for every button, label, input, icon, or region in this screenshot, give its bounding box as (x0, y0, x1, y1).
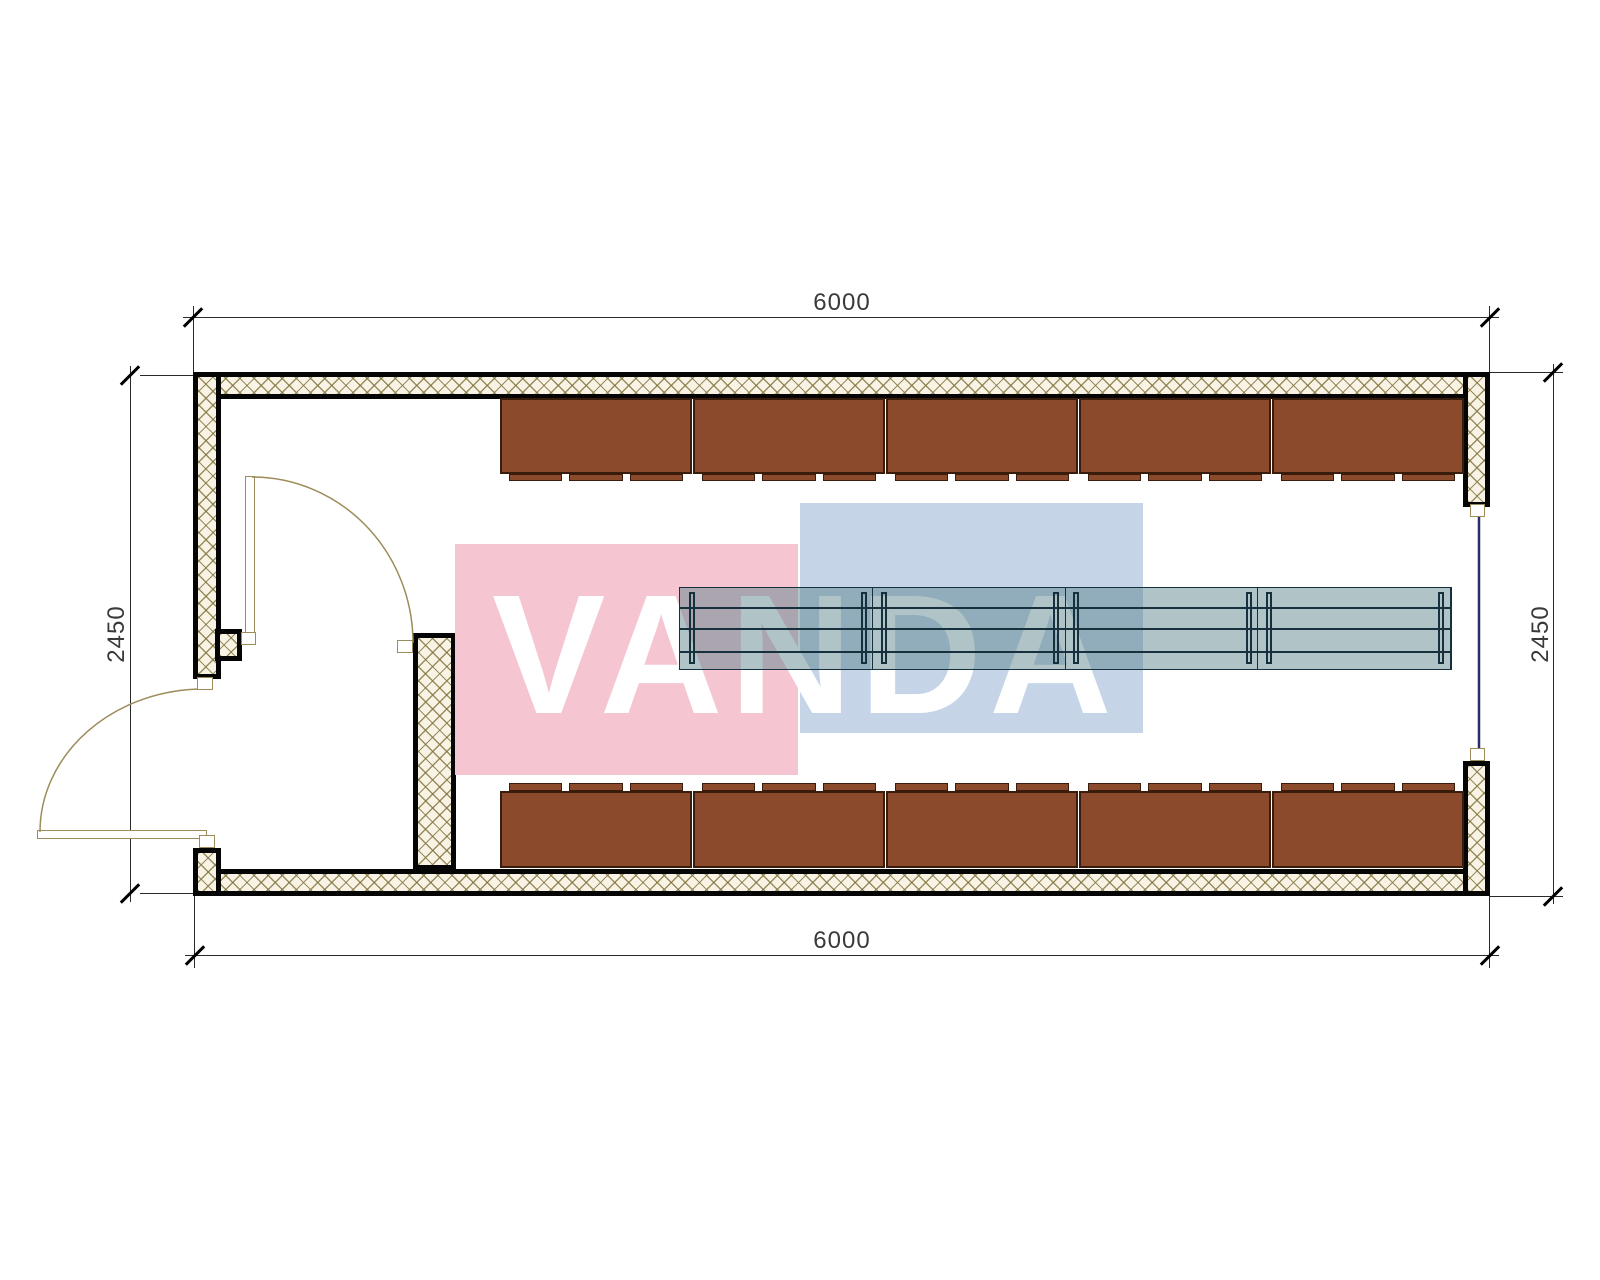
cabinet-rail-segment (1148, 474, 1201, 481)
floor-plan-canvas: 6000 6000 2450 2450 VANDA (0, 0, 1600, 1280)
cabinet-unit (693, 783, 885, 868)
table-leg (861, 592, 867, 664)
wall-right-pier-bottom (1463, 761, 1490, 896)
cabinet-rail (693, 474, 885, 481)
window-jamb (1470, 504, 1485, 517)
cabinet-unit (1079, 783, 1271, 868)
cabinet-rail-segment (895, 783, 948, 791)
cabinet-rail-segment (1209, 474, 1262, 481)
dimension-line-left (130, 366, 131, 902)
cabinet-rail-segment (630, 474, 683, 481)
cabinet-rail-segment (1281, 474, 1334, 481)
door-pier-left (215, 629, 242, 661)
cabinet-rail-segment (1148, 783, 1201, 791)
cabinet-body (886, 398, 1078, 474)
wall-left-lower-stub (193, 848, 221, 896)
cabinet-unit (1272, 398, 1464, 481)
cabinet-unit (693, 398, 885, 481)
cabinet-rail (1272, 783, 1464, 791)
cabinet-rail-segment (1402, 783, 1455, 791)
dimension-label-right: 2450 (1528, 564, 1554, 704)
cabinet-rail-segment (762, 474, 815, 481)
cabinet-rail-segment (1088, 783, 1141, 791)
cabinet-unit (1272, 783, 1464, 868)
cabinet-rail-segment (823, 783, 876, 791)
cabinet-rail-segment (630, 783, 683, 791)
cabinet-rail-segment (1016, 783, 1069, 791)
door-jamb (199, 835, 215, 848)
table-leg (881, 592, 887, 664)
table-leg (1053, 592, 1059, 664)
wall-right-pier-top (1463, 372, 1490, 507)
table-leg (1266, 592, 1272, 664)
cabinet-rail-segment (1341, 783, 1394, 791)
interior-door-arc (252, 477, 413, 643)
cabinet-rail-segment (1281, 783, 1334, 791)
window-jamb (1470, 748, 1485, 761)
cabinet-row-top (500, 398, 1464, 481)
cabinet-rail-segment (702, 783, 755, 791)
dimension-label-bottom: 6000 (772, 928, 912, 954)
table-leg (1073, 592, 1079, 664)
cabinet-rail-segment (1402, 474, 1455, 481)
central-table (679, 587, 1452, 670)
dimension-line-top (183, 317, 1499, 318)
cabinet-unit (886, 783, 1078, 868)
extension-line (140, 375, 194, 376)
cabinet-rail (1272, 474, 1464, 481)
table-leg (689, 592, 695, 664)
cabinet-body (1079, 398, 1271, 474)
cabinet-rail-segment (1088, 474, 1141, 481)
cabinet-rail-segment (509, 783, 562, 791)
cabinet-unit (500, 398, 692, 481)
cabinet-rail (500, 474, 692, 481)
cabinet-rail-segment (702, 474, 755, 481)
cabinet-body (1272, 398, 1464, 474)
cabinet-unit (886, 398, 1078, 481)
cabinet-rail (693, 783, 885, 791)
cabinet-rail (1079, 783, 1271, 791)
cabinet-body (500, 398, 692, 474)
cabinet-body (1272, 791, 1464, 868)
wall-bottom (193, 869, 1490, 896)
cabinet-rail-segment (823, 474, 876, 481)
cabinet-rail (1079, 474, 1271, 481)
door-hinge-jamb (241, 632, 256, 645)
cabinet-rail-segment (569, 474, 622, 481)
cabinet-rail (886, 783, 1078, 791)
cabinet-body (1079, 791, 1271, 868)
table-plank-line (680, 651, 1451, 653)
cabinet-unit (500, 783, 692, 868)
cabinet-rail-segment (1209, 783, 1262, 791)
extension-line (140, 893, 194, 894)
cabinet-rail-segment (509, 474, 562, 481)
cabinet-body (693, 398, 885, 474)
partition-vestibule (413, 633, 456, 870)
cabinet-body (886, 791, 1078, 868)
cabinet-unit (1079, 398, 1271, 481)
dimension-line-bottom (185, 955, 1499, 956)
cabinet-rail-segment (1341, 474, 1394, 481)
cabinet-body (500, 791, 692, 868)
table-plank-line (680, 628, 1451, 630)
cabinet-rail-segment (955, 474, 1008, 481)
table-plank-line (680, 607, 1451, 609)
cabinet-row-bottom (500, 783, 1464, 868)
dimension-label-left: 2450 (104, 564, 130, 704)
door-jamb (197, 677, 213, 690)
cabinet-rail (500, 783, 692, 791)
cabinet-rail-segment (955, 783, 1008, 791)
exterior-door-leaf (37, 830, 207, 839)
door-jamb (397, 640, 413, 653)
cabinet-rail-segment (1016, 474, 1069, 481)
table-leg (1438, 592, 1444, 664)
dimension-label-top: 6000 (772, 290, 912, 316)
cabinet-rail-segment (762, 783, 815, 791)
interior-door-leaf (245, 476, 255, 644)
cabinet-body (693, 791, 885, 868)
cabinet-rail-segment (569, 783, 622, 791)
cabinet-rail (886, 474, 1078, 481)
cabinet-rail-segment (895, 474, 948, 481)
exterior-door-arc (40, 689, 204, 832)
table-leg (1246, 592, 1252, 664)
wall-top (193, 372, 1490, 399)
